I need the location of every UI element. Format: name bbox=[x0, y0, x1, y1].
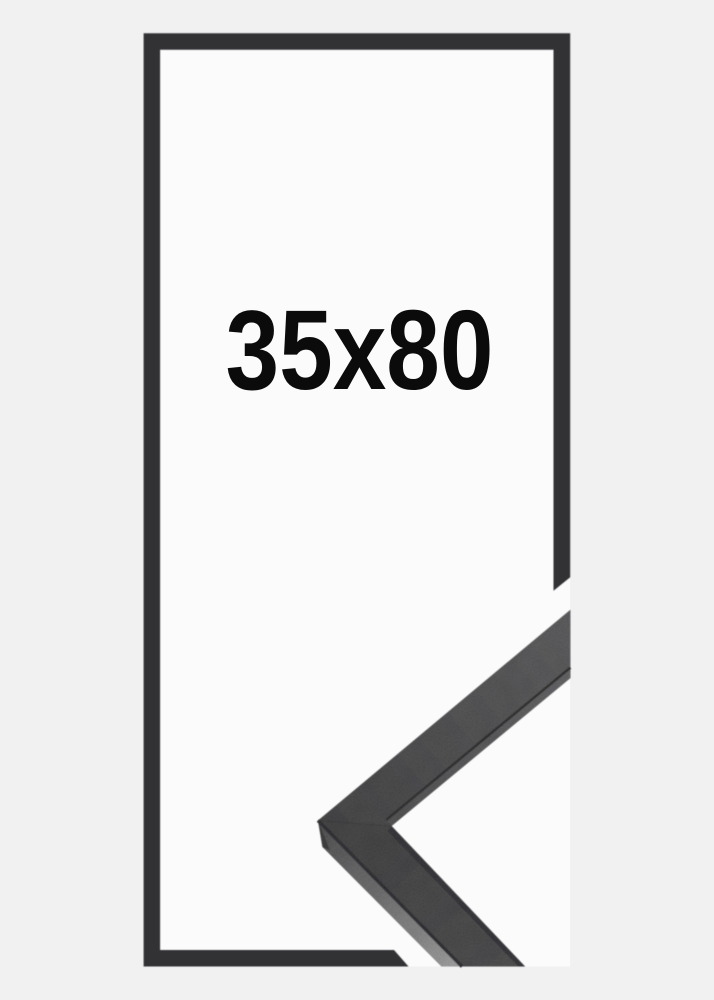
svg-text:35x80: 35x80 bbox=[226, 287, 494, 413]
